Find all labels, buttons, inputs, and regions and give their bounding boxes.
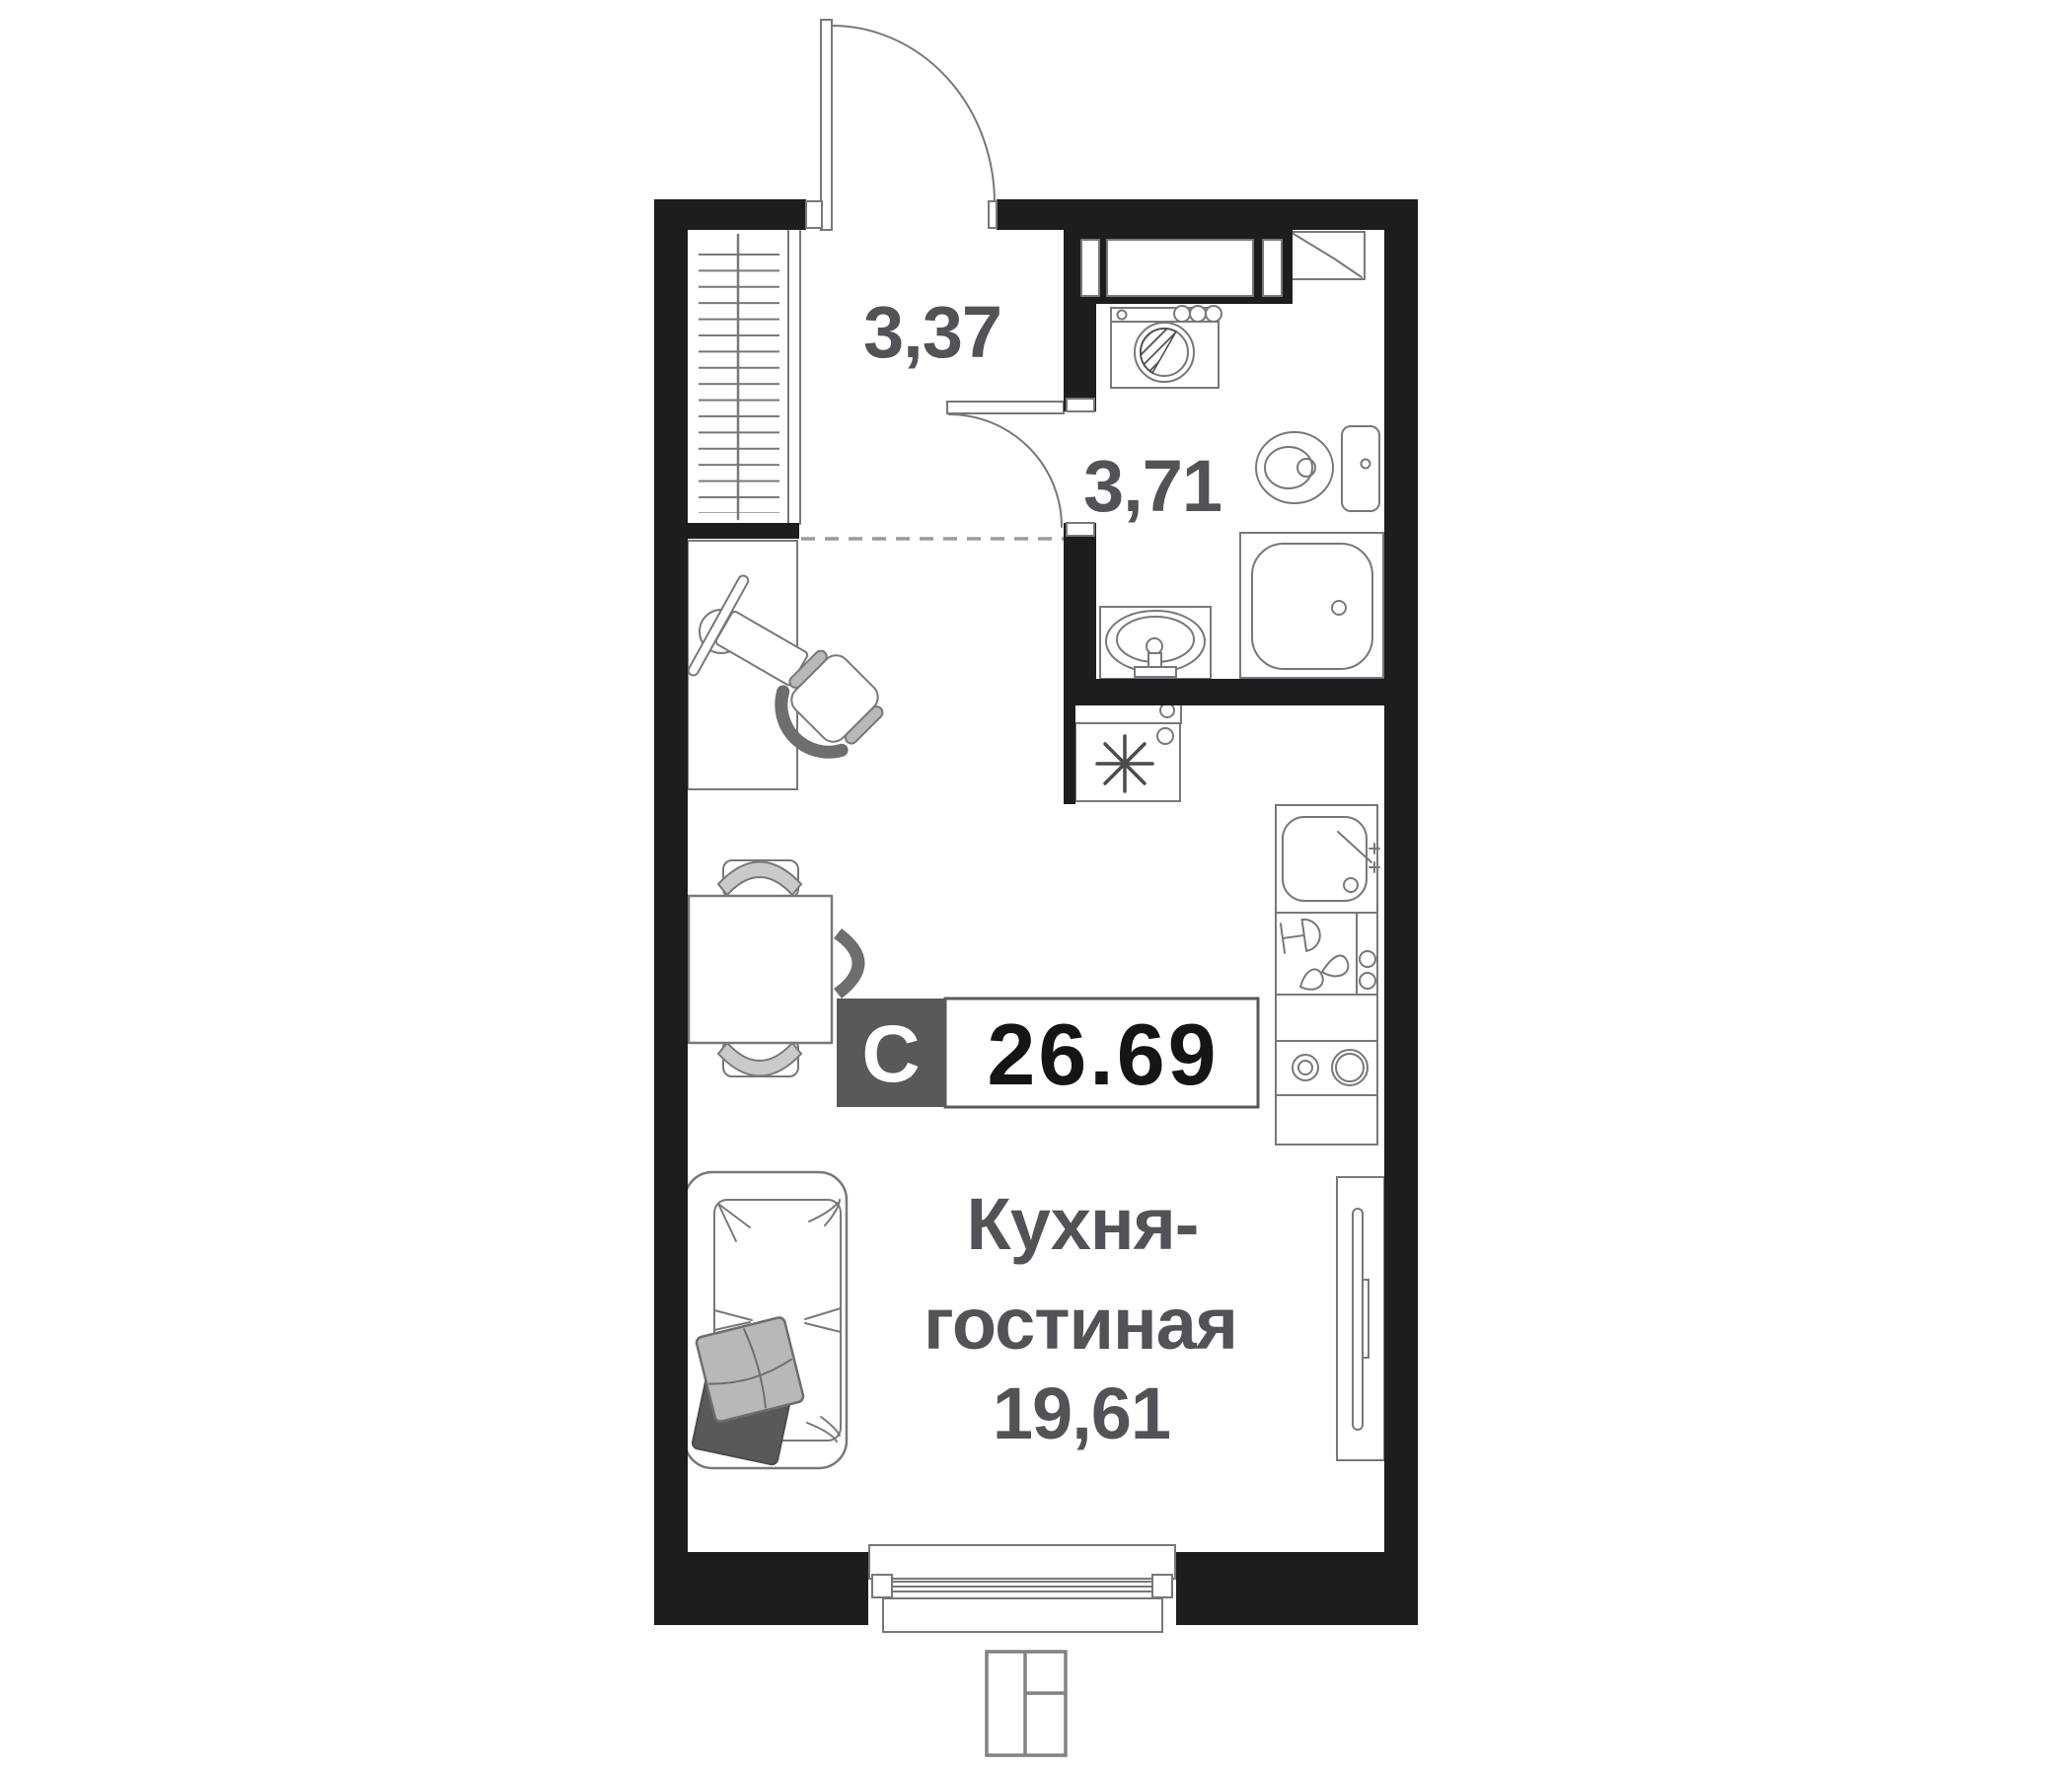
desk (687, 541, 809, 789)
snowflake-icon (1097, 736, 1152, 791)
tv-console (1337, 1177, 1384, 1460)
door-jamb (1067, 399, 1094, 411)
kitchen-living-label-line2: гостиная (924, 1283, 1237, 1365)
dining-table (689, 896, 832, 1043)
kitchen-living-area-label: 19,61 (993, 1372, 1170, 1454)
counter-cell (1276, 995, 1377, 1041)
kitchen-living-label-line1: Кухня- (967, 1183, 1199, 1265)
tv-panel-icon (1353, 1209, 1363, 1430)
area-badge: С 26.69 (837, 999, 1258, 1107)
floor-plan: 3,37 3,71 Кухня- гостиная 19,61 С 26.69 (0, 0, 2072, 1776)
counter-cell (1276, 1095, 1377, 1145)
fridge (1073, 699, 1181, 801)
badge-total-area: 26.69 (987, 1005, 1219, 1103)
kitchen-counter (1276, 805, 1379, 1145)
wall-niche (1081, 240, 1099, 296)
shower-tray (1240, 533, 1383, 678)
canvas-background (0, 0, 2072, 1776)
sofa (685, 1172, 847, 1468)
bathroom-bottom-wall (1064, 679, 1384, 705)
wall-niche (1107, 240, 1253, 296)
hallway-area-label: 3,37 (863, 291, 1001, 373)
bathroom-area-label: 3,71 (1083, 445, 1221, 527)
door-jamb (989, 201, 997, 228)
bathroom-sink (1100, 607, 1211, 679)
badge-type-letter: С (861, 1009, 920, 1099)
wardrobe-stub-wall (654, 523, 799, 539)
counter-cell-stove (1276, 1041, 1377, 1095)
wall-niche (1263, 240, 1282, 296)
door-jamb (806, 201, 822, 228)
washing-machine (1111, 306, 1221, 388)
